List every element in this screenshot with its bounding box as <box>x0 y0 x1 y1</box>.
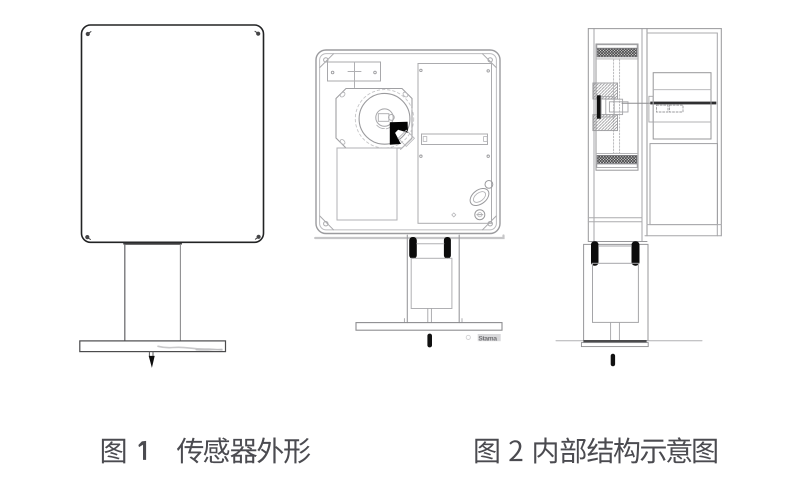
svg-text:Stama: Stama <box>478 336 497 343</box>
